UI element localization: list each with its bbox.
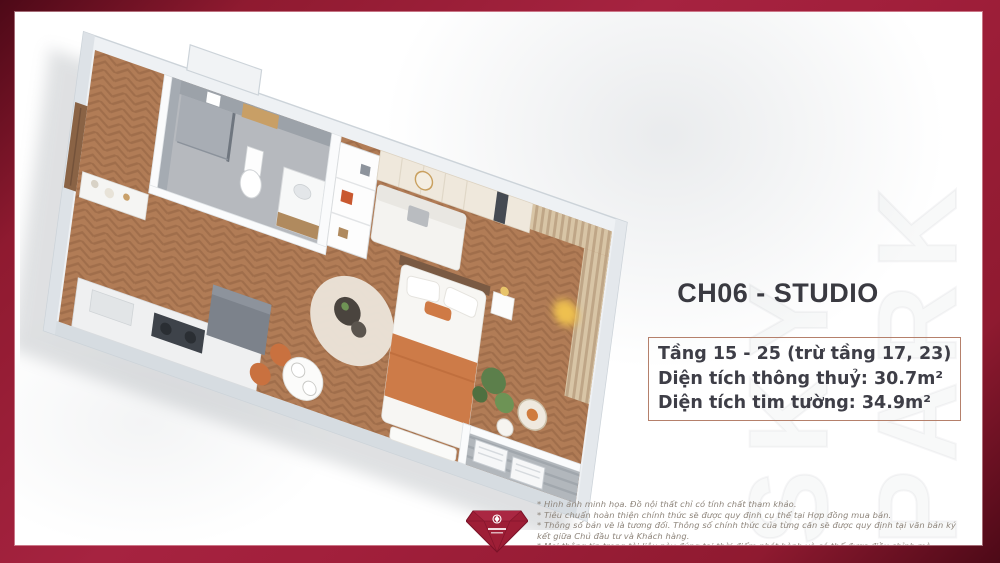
disclaimer-notes: * Hình ảnh minh họa. Đồ nội thất chỉ có … [537, 499, 957, 545]
disclaimer-line: * Mọi thông tin trong tài liệu này đúng … [537, 541, 957, 545]
gem-logo [466, 504, 528, 554]
disclaimer-line: * Hình ảnh minh họa. Đồ nội thất chỉ có … [537, 499, 957, 510]
disclaimer-line: * Thông số bản vẽ là tương đối. Thông số… [537, 520, 957, 541]
unit-title: CH06 - STUDIO [647, 278, 909, 309]
unit-info-box: Tầng 15 - 25 (trừ tầng 17, 23) Diện tích… [648, 337, 961, 421]
unit-net-area: Diện tích thông thuỷ: 30.7m² [658, 367, 951, 392]
unit-gross-area: Diện tích tim tường: 34.9m² [658, 391, 951, 416]
brochure-page: SKY PARK [0, 0, 1000, 563]
content-canvas: SKY PARK [15, 12, 982, 545]
floorplan-3d [20, 15, 660, 530]
disclaimer-line: * Tiêu chuẩn hoàn thiện chính thức sẽ đư… [537, 510, 957, 521]
unit-floors: Tầng 15 - 25 (trừ tầng 17, 23) [658, 342, 951, 367]
